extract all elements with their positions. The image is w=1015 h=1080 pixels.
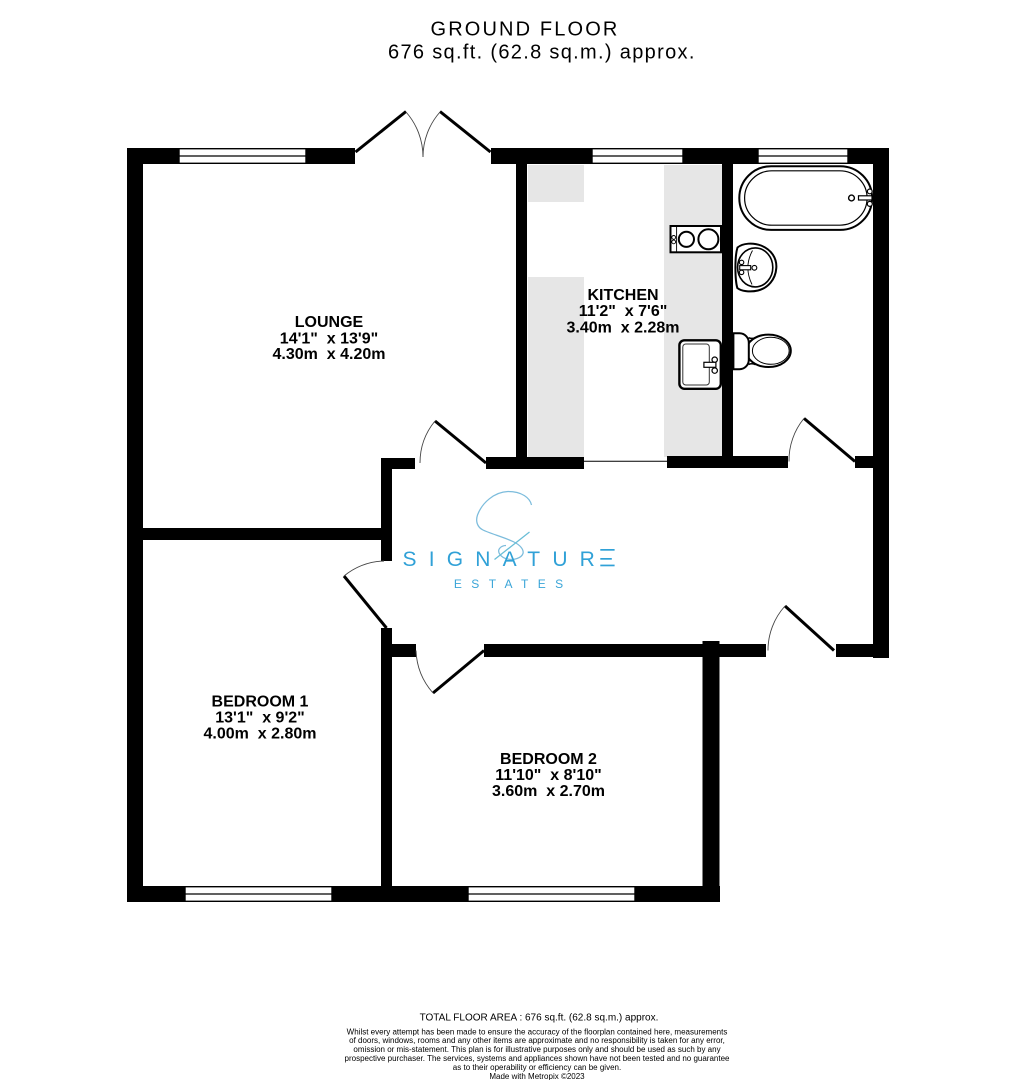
svg-text:prospective purchaser. The ser: prospective purchaser. The services, sys… — [345, 1054, 731, 1063]
svg-text:13'1" x 9'2": 13'1" x 9'2" — [215, 709, 305, 726]
svg-text:4.30m x 4.20m: 4.30m x 4.20m — [273, 346, 386, 363]
svg-text:KITCHEN: KITCHEN — [587, 287, 658, 304]
svg-text:as to their operability or eff: as to their operability or efficiency ca… — [453, 1063, 621, 1072]
svg-text:LOUNGE: LOUNGE — [295, 314, 364, 331]
svg-text:ESTATES: ESTATES — [454, 577, 573, 591]
svg-text:of doors, windows, rooms and a: of doors, windows, rooms and any other i… — [349, 1036, 725, 1045]
svg-text:11'10" x 8'10": 11'10" x 8'10" — [495, 767, 601, 784]
svg-text:omission or mis-statement. Thi: omission or mis-statement. This plan is … — [353, 1045, 720, 1054]
svg-text:TOTAL FLOOR AREA : 676 sq.ft.: TOTAL FLOOR AREA : 676 sq.ft. (62.8 sq.m… — [420, 1012, 659, 1023]
svg-text:11'2" x 7'6": 11'2" x 7'6" — [579, 303, 668, 320]
svg-text:3.60m x 2.70m: 3.60m x 2.70m — [492, 783, 605, 800]
svg-text:14'1" x 13'9": 14'1" x 13'9" — [280, 330, 378, 347]
svg-text:Made with Metropix ©2023: Made with Metropix ©2023 — [489, 1072, 585, 1080]
svg-text:BEDROOM 2: BEDROOM 2 — [500, 751, 597, 768]
svg-text:3.40m x 2.28m: 3.40m x 2.28m — [567, 320, 680, 337]
svg-text:4.00m x 2.80m: 4.00m x 2.80m — [204, 725, 317, 742]
svg-text:SIGNATUR: SIGNATUR — [403, 548, 608, 571]
svg-text:Whilst every attempt has been: Whilst every attempt has been made to en… — [347, 1027, 728, 1036]
svg-text:BEDROOM 1: BEDROOM 1 — [212, 693, 309, 710]
svg-text:676 sq.ft. (62.8 sq.m.) approx: 676 sq.ft. (62.8 sq.m.) approx. — [388, 42, 696, 64]
svg-text:GROUND FLOOR: GROUND FLOOR — [431, 18, 620, 40]
